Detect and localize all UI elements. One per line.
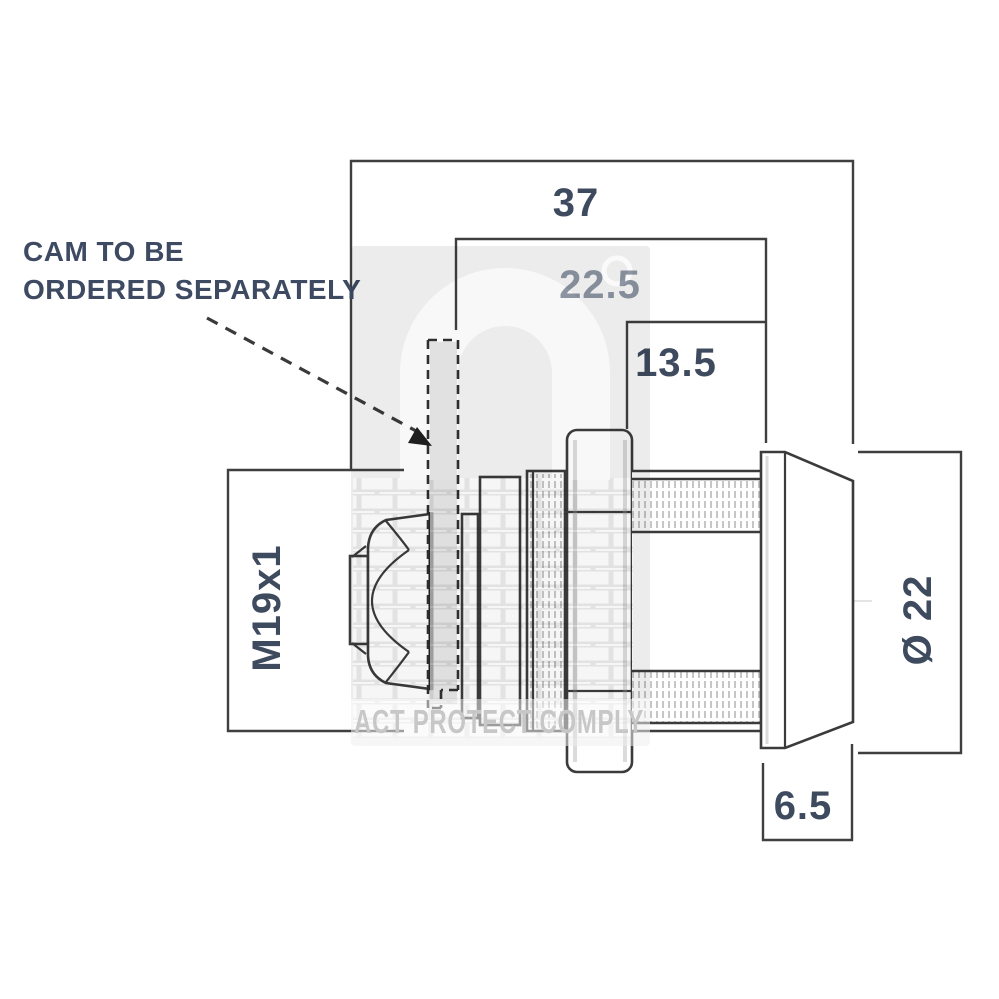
watermark-text: ACT PROTECT COMPLY	[354, 703, 644, 740]
watermark-text-layer: ACT PROTECT COMPLY	[0, 0, 999, 999]
engineering-drawing-page: CAM TO BE ORDERED SEPARATELY 37 22.5 13.…	[0, 0, 999, 999]
